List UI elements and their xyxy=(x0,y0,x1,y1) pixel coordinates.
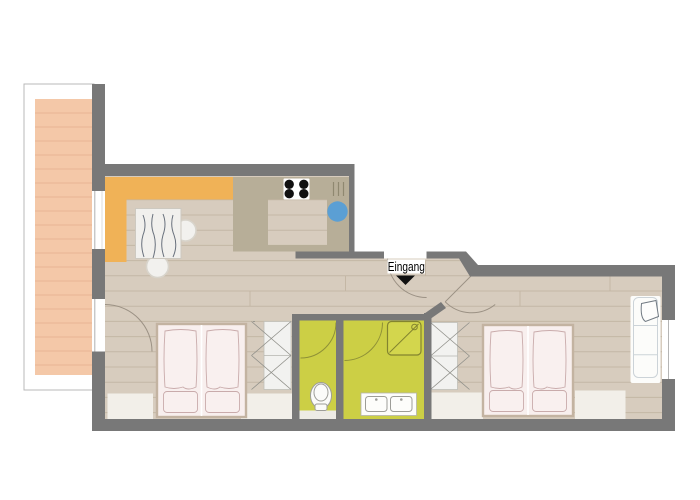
svg-text:Eingang: Eingang xyxy=(388,260,425,274)
